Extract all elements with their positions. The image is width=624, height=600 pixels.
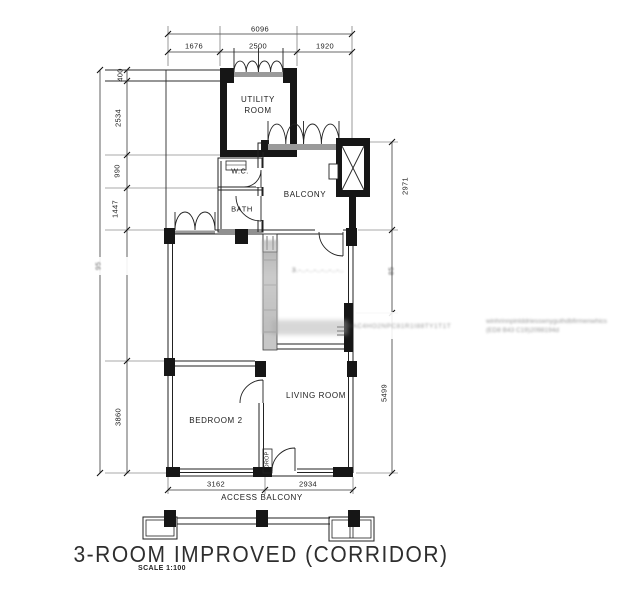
- room-label-bedroom2: BEDROOM 2: [189, 417, 242, 425]
- balcony-top-wall: [261, 121, 346, 152]
- wall-below-shaft: [349, 197, 356, 232]
- dim-left-total-garbled: 95: [96, 262, 103, 270]
- watermark-right-line2: (ED8 B43 C19)2098194d: [486, 327, 559, 335]
- room-label-bedroom1-blurred: 3.-..-..-..-..-..-..: [292, 268, 344, 275]
- room-label-living: LIVING ROOM: [286, 392, 346, 400]
- room-label-drop: DROP: [265, 452, 271, 469]
- bedroom1-door: [319, 232, 343, 256]
- watermark-band-mid: WAC4HO2NPC81R1I88TY1T1T: [346, 323, 451, 331]
- structural-columns: [164, 228, 357, 477]
- dim-right-2971: 2971: [401, 177, 409, 195]
- smudge-bed: [272, 320, 348, 335]
- dim-right-5499: 5499: [380, 384, 388, 402]
- plan-scale: SCALE 1:100: [138, 565, 186, 573]
- dim-bottom-3162: 3162: [207, 480, 225, 488]
- balcony-double-door: [268, 121, 339, 144]
- balcony-door-sill: [268, 144, 339, 150]
- dim-top-seg1: 1676: [185, 42, 203, 50]
- dim-top-seg2: 2500: [249, 42, 267, 50]
- wash-band-left: [0, 257, 162, 275]
- plan-title: 3-ROOM IMPROVED (CORRIDOR): [74, 544, 449, 567]
- utility-door-sill: [234, 72, 283, 77]
- bath-door-gap: [256, 196, 265, 220]
- shaft-hatch-box: [329, 164, 338, 179]
- room-label-balcony: BALCONY: [284, 191, 326, 199]
- room-label-wc: W.C.: [231, 169, 249, 176]
- dim-top-seg3: 1920: [316, 42, 334, 50]
- boundary-lines: [105, 70, 222, 229]
- floorplan-drawing: [0, 0, 624, 600]
- label-access-balcony: ACCESS BALCONY: [221, 494, 303, 502]
- service-shaft: [329, 138, 370, 232]
- room-label-utility-1: UTILITY: [241, 96, 275, 104]
- dim-top-total: 6096: [251, 25, 269, 33]
- dim-left-1447: 1447: [111, 200, 119, 218]
- dim-left-2534: 2534: [114, 109, 122, 127]
- floorplan-page: 6096 1676 2500 1920 400 2534 990 1447 38…: [0, 0, 624, 600]
- dim-right-garbled: 85: [389, 267, 396, 275]
- room-label-utility-2: ROOM: [244, 107, 271, 115]
- dim-left-400: 400: [116, 68, 124, 81]
- dim-left-3860: 3860: [114, 408, 122, 426]
- corridor-strip: [143, 510, 374, 541]
- dim-bottom-2934: 2934: [299, 480, 317, 488]
- wc-door-gap: [256, 168, 265, 187]
- watermark-right-line1: winhrinnpinlddriesswnyguthdbfirmenwhics: [486, 318, 607, 326]
- void-double-door: [175, 212, 215, 234]
- room-label-bath: BATH: [231, 205, 253, 213]
- bedroom2-door: [240, 380, 263, 403]
- dim-left-990: 990: [113, 164, 121, 177]
